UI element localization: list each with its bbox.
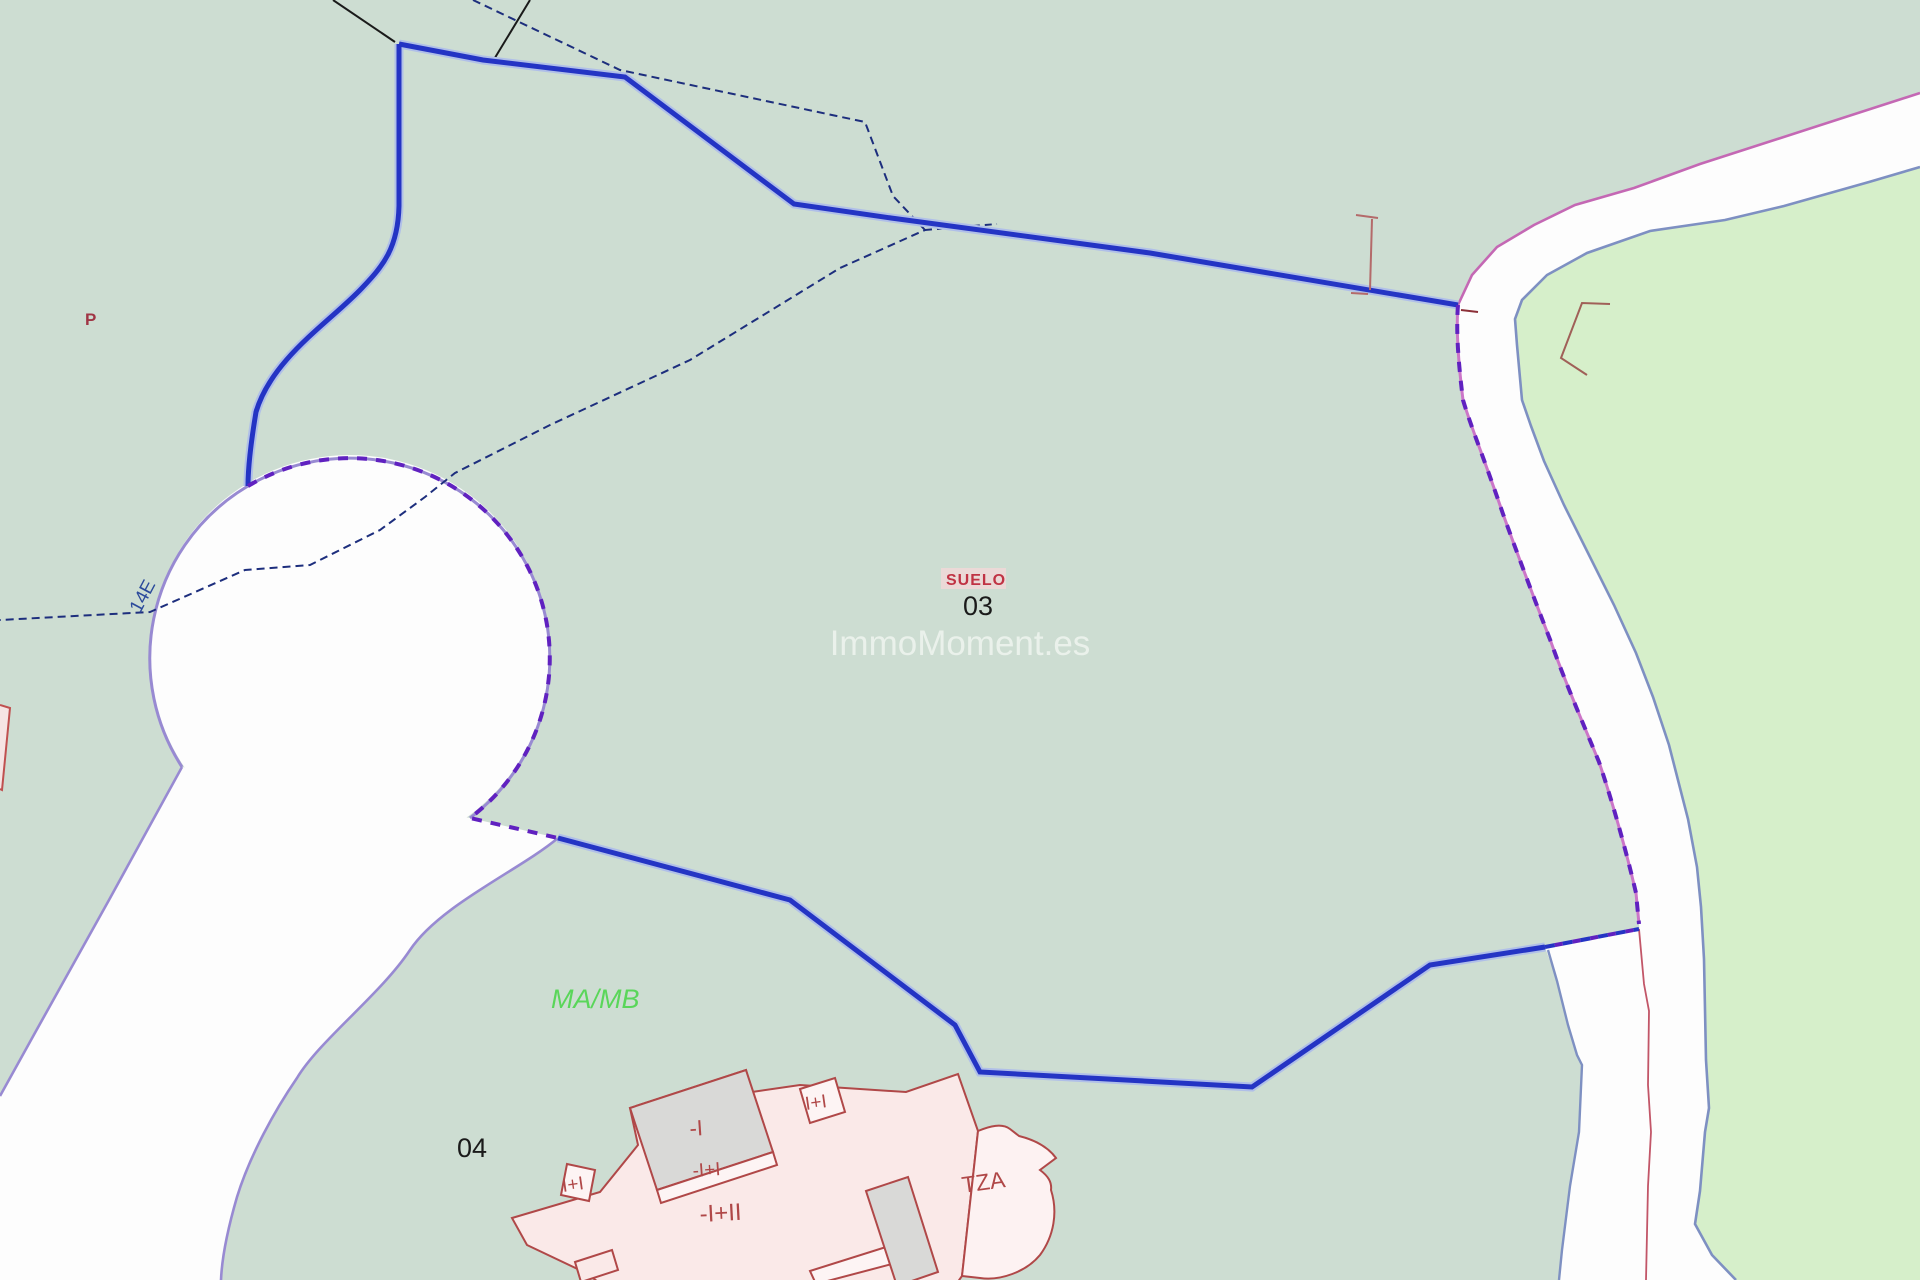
- svg-text:SUELO: SUELO: [946, 572, 1006, 589]
- svg-text:ImmoMoment.es: ImmoMoment.es: [830, 624, 1091, 663]
- svg-text:-I: -I: [689, 1115, 704, 1141]
- svg-text:-I+II: -I+II: [699, 1199, 742, 1228]
- svg-text:03: 03: [963, 591, 993, 621]
- svg-text:04: 04: [457, 1133, 487, 1163]
- svg-text:-I+I: -I+I: [692, 1159, 721, 1182]
- svg-text:I+I: I+I: [804, 1091, 828, 1115]
- svg-text:P: P: [85, 310, 96, 329]
- svg-text:I+I: I+I: [561, 1173, 585, 1197]
- svg-text:MA/MB: MA/MB: [551, 984, 640, 1014]
